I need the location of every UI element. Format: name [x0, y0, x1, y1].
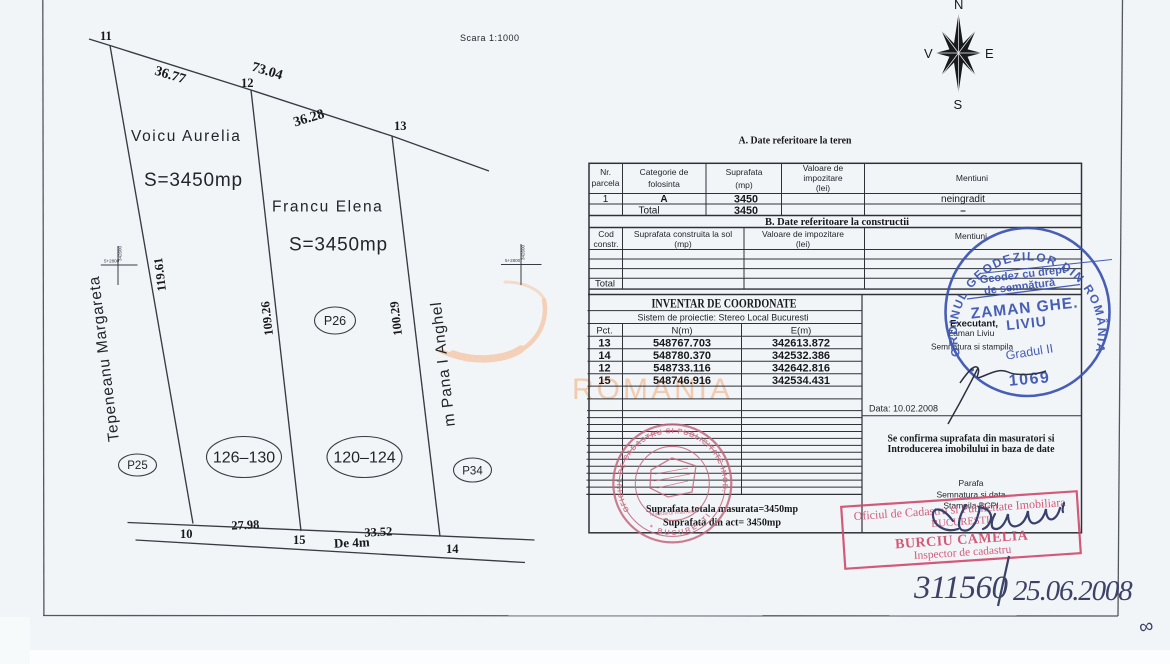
svg-text:Total: Total: [638, 206, 659, 217]
svg-text:Valoare de: Valoare de: [803, 163, 844, 173]
svg-text:S=3450mp: S=3450mp: [289, 235, 388, 256]
svg-text:Suprafata din act= 3450mp: Suprafata din act= 3450mp: [663, 517, 781, 529]
svg-text:Mentiuni: Mentiuni: [955, 231, 987, 241]
svg-text:1069: 1069: [1008, 369, 1051, 390]
svg-text:548767.703: 548767.703: [653, 338, 711, 350]
svg-text:5+2800: 5+2800: [505, 258, 521, 263]
svg-text:Francu Elena: Francu Elena: [272, 199, 383, 216]
svg-text:Parafa: Parafa: [958, 478, 983, 488]
svg-text:A: A: [660, 194, 667, 205]
svg-text:548733.116: 548733.116: [653, 362, 711, 374]
svg-text:parcela: parcela: [592, 178, 620, 188]
svg-text:Categorie de: Categorie de: [640, 167, 689, 177]
svg-text:Suprafata construita la sol: Suprafata construita la sol: [634, 229, 732, 239]
svg-text:Se confirma suprafata din masu: Se confirma suprafata din masuratori si: [888, 434, 1055, 445]
svg-text:25.06.2008: 25.06.2008: [1013, 575, 1133, 607]
svg-text:neingradit: neingradit: [941, 194, 985, 205]
svg-text:342534.431: 342534.431: [772, 375, 830, 387]
svg-text:Sistem de proiectie: Stereo: Sistem de proiectie: Stereo Local Bucure…: [638, 313, 809, 324]
svg-text:10: 10: [180, 527, 193, 541]
svg-text:11: 11: [100, 29, 112, 43]
svg-text:Introducerea imobilului in baz: Introducerea imobilului in baza de date: [888, 444, 1056, 455]
svg-text:(mp): (mp): [674, 239, 692, 249]
svg-text:13: 13: [394, 119, 407, 133]
svg-text:–: –: [960, 206, 966, 217]
svg-text:impozitare: impozitare: [803, 173, 842, 183]
svg-text:548780.370: 548780.370: [653, 350, 711, 362]
svg-text:342600: 342600: [118, 245, 123, 261]
svg-text:548746.916: 548746.916: [653, 375, 711, 387]
svg-text:P26: P26: [324, 314, 346, 328]
svg-text:342532.386: 342532.386: [772, 350, 830, 362]
svg-text:14: 14: [598, 350, 611, 362]
svg-text:311560: 311560: [913, 570, 1009, 606]
svg-text:S=3450mp: S=3450mp: [144, 170, 243, 191]
svg-text:V: V: [924, 46, 933, 61]
svg-text:Scara 1:1000: Scara 1:1000: [460, 33, 520, 43]
svg-text:Suprafata: Suprafata: [726, 167, 763, 177]
svg-text:Data: 10.02.2008: Data: 10.02.2008: [869, 404, 938, 414]
svg-text:342600: 342600: [521, 244, 526, 260]
svg-text:(mp): (mp): [735, 180, 753, 190]
svg-text:E: E: [985, 46, 994, 61]
svg-text:14: 14: [446, 542, 459, 556]
svg-text:1: 1: [603, 194, 609, 205]
svg-text:13: 13: [598, 338, 610, 350]
svg-text:120–124: 120–124: [333, 450, 395, 467]
svg-text:folosinta: folosinta: [648, 179, 680, 189]
svg-text:constr.: constr.: [593, 239, 618, 249]
svg-text:B. Date referitoare la constru: B. Date referitoare la constructii: [765, 217, 909, 228]
svg-text:15: 15: [293, 533, 306, 547]
svg-text:Nr.: Nr.: [600, 167, 611, 177]
svg-text:Total: Total: [595, 279, 615, 290]
svg-text:P34: P34: [462, 466, 483, 478]
svg-text:INVENTAR DE COORDONATE: INVENTAR DE COORDONATE: [652, 297, 797, 311]
svg-text:S: S: [954, 97, 963, 112]
svg-text:N: N: [954, 0, 963, 12]
svg-text:N(m): N(m): [671, 326, 692, 337]
svg-text:3450: 3450: [734, 194, 758, 206]
svg-text:A. Date referitoare la teren: A. Date referitoare la teren: [739, 136, 852, 147]
svg-text:Cod: Cod: [598, 229, 614, 239]
svg-text:126–130: 126–130: [213, 450, 275, 467]
svg-text:15: 15: [598, 375, 610, 387]
svg-text:342613.872: 342613.872: [772, 338, 830, 350]
svg-text:E(m): E(m): [791, 326, 812, 337]
svg-text:27.98: 27.98: [231, 517, 260, 532]
svg-text:3450: 3450: [734, 205, 758, 217]
svg-text:(lei): (lei): [816, 183, 830, 193]
svg-text:P25: P25: [127, 460, 147, 472]
svg-text:(lei): (lei): [796, 239, 810, 249]
svg-text:342642.816: 342642.816: [772, 362, 830, 374]
svg-text:Pct.: Pct.: [596, 326, 612, 337]
svg-text:Mentiuni: Mentiuni: [956, 173, 988, 183]
svg-text:Valoare de impozitare: Valoare de impozitare: [762, 229, 844, 239]
svg-text:12: 12: [598, 362, 610, 374]
svg-text:De 4m: De 4m: [334, 534, 371, 551]
svg-text:Voicu Aurelia: Voicu Aurelia: [131, 128, 241, 145]
svg-text:12: 12: [241, 76, 254, 90]
svg-text:Semnatura si stampila: Semnatura si stampila: [931, 342, 1013, 352]
